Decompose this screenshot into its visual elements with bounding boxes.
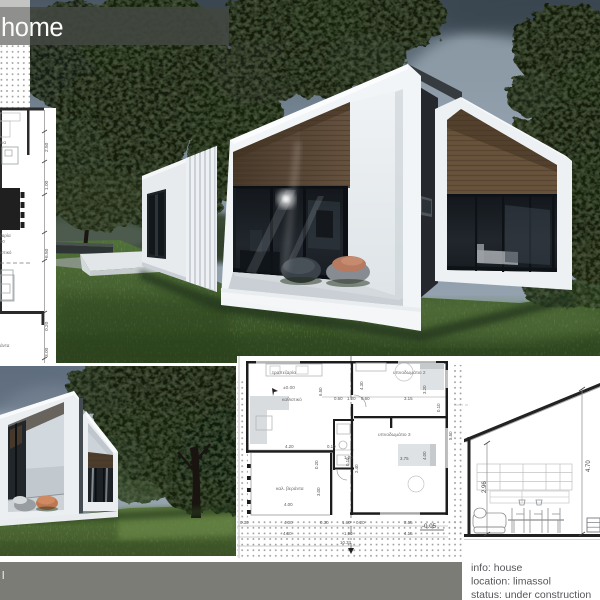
svg-text:location: limassol: location: limassol — [471, 576, 551, 588]
svg-text:4.00: 4.00 — [284, 502, 293, 507]
svg-text:0.20: 0.20 — [356, 520, 365, 525]
svg-text:4.60: 4.60 — [283, 531, 292, 536]
svg-text:1.60: 1.60 — [342, 520, 351, 525]
svg-text:-0.05: -0.05 — [422, 523, 437, 530]
svg-text:2.96: 2.96 — [482, 481, 488, 493]
svg-text:4.15: 4.15 — [404, 531, 413, 536]
svg-text:ίνα: ίνα — [0, 140, 6, 145]
svg-text:status: under construction: status: under construction — [471, 589, 591, 600]
svg-text:10.33: 10.33 — [340, 540, 352, 545]
svg-text:4.30: 4.30 — [359, 381, 364, 390]
svg-text:1.90: 1.90 — [344, 531, 353, 536]
svg-text:0.60: 0.60 — [361, 396, 370, 401]
svg-text:4.70: 4.70 — [586, 460, 592, 472]
svg-text:3.75: 3.75 — [400, 456, 409, 461]
svg-text:2.40: 2.40 — [354, 464, 359, 473]
svg-text:1.00: 1.00 — [44, 180, 50, 190]
svg-text:0.60: 0.60 — [334, 396, 343, 401]
svg-text:6.50: 6.50 — [44, 248, 50, 258]
svg-text:0.30: 0.30 — [320, 520, 329, 525]
svg-text:1.20: 1.20 — [347, 396, 356, 401]
svg-text:καλ. βεράντα: καλ. βεράντα — [276, 485, 304, 492]
svg-text:5.50: 5.50 — [448, 431, 453, 440]
svg-text:2.50: 2.50 — [44, 142, 50, 152]
svg-text:0.20: 0.20 — [314, 460, 319, 469]
svg-text:υπνοδωμάτιο 3: υπνοδωμάτιο 3 — [378, 431, 411, 438]
svg-text:τραπεζαρία: τραπεζαρία — [272, 370, 296, 376]
svg-text:4.00: 4.00 — [422, 451, 427, 460]
svg-text:άντα: άντα — [0, 342, 10, 348]
svg-text:info: house: info: house — [471, 562, 523, 574]
svg-text:0.30: 0.30 — [240, 520, 249, 525]
svg-text:3.20: 3.20 — [422, 385, 427, 394]
svg-text:l: l — [2, 570, 4, 582]
svg-text:3.00: 3.00 — [316, 487, 321, 496]
svg-text:0.10: 0.10 — [436, 403, 441, 412]
svg-text:0.20: 0.20 — [44, 321, 50, 331]
svg-text:καθιστικό: καθιστικό — [282, 396, 302, 403]
svg-text:3.00: 3.00 — [44, 347, 50, 357]
svg-text:0.10: 0.10 — [345, 457, 350, 466]
svg-text:3.55: 3.55 — [404, 520, 413, 525]
svg-text:4.00: 4.00 — [284, 520, 293, 525]
svg-text:00: 00 — [0, 239, 5, 244]
svg-text:υπνοδωμάτιο 2: υπνοδωμάτιο 2 — [393, 369, 426, 376]
svg-text:±0.00: ±0.00 — [283, 385, 295, 391]
svg-text:3.15: 3.15 — [404, 396, 413, 401]
svg-text:0.10: 0.10 — [327, 444, 336, 449]
svg-text:6.50: 6.50 — [318, 387, 323, 396]
svg-text:home: home — [1, 14, 63, 42]
svg-text:ιστικό: ιστικό — [0, 249, 12, 255]
svg-text:4.20: 4.20 — [285, 444, 294, 449]
